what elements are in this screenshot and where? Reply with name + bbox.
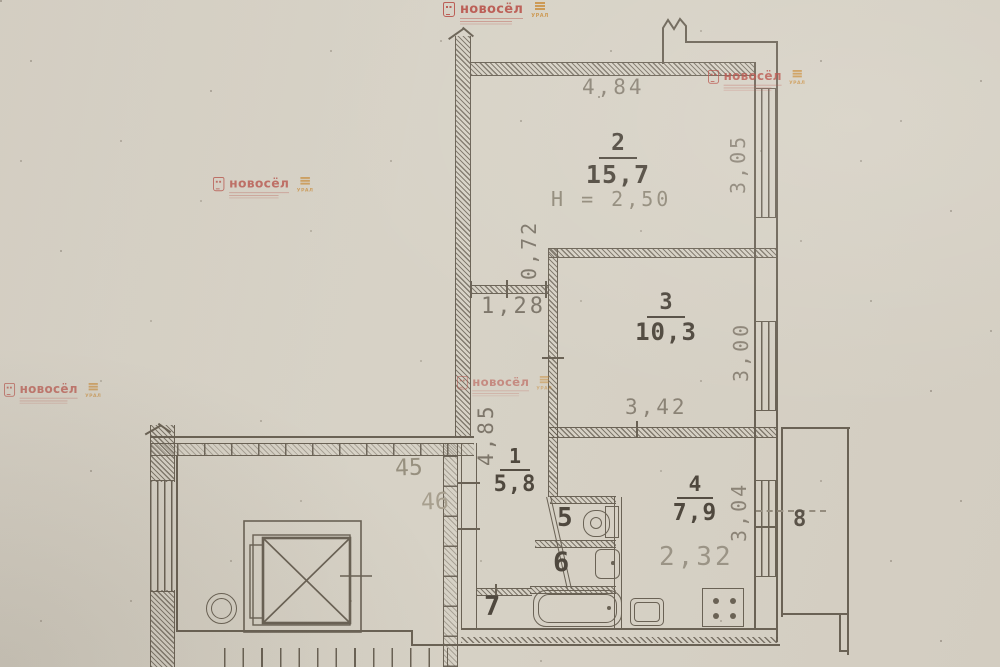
watermark: новосёл УРАЛ xyxy=(213,177,313,196)
door-tick xyxy=(542,357,564,359)
room-2-area: 15,7 xyxy=(578,161,658,188)
room-1-number: 1 xyxy=(500,446,530,471)
room-3-number: 3 xyxy=(647,291,684,318)
toilet-icon xyxy=(590,517,602,529)
room-4-label: 4 7,9 xyxy=(658,473,732,526)
unit-number-46: 46 xyxy=(421,489,450,516)
room-2-label: 2 15,7 xyxy=(578,131,658,188)
novosel-logo-icon xyxy=(4,383,15,397)
room-4-area: 7,9 xyxy=(658,501,732,526)
dim-room2-right: 3,05 xyxy=(726,134,750,194)
watermark-region: УРАЛ xyxy=(85,393,101,399)
balcony-outline xyxy=(847,615,849,655)
watermark-brand: новосёл xyxy=(229,177,289,193)
wall-segment xyxy=(461,637,778,643)
stove-burner-icon xyxy=(730,613,736,619)
door-tick xyxy=(458,528,480,530)
room-2-height-note: Н = 2,50 xyxy=(551,187,671,211)
garbage-chute-icon xyxy=(211,598,232,619)
door-tick xyxy=(470,281,472,298)
washbasin-icon xyxy=(595,549,620,579)
floor-plan-scan: 2 15,7 Н = 2,50 3 10,3 1 5,8 4 7,9 5 6 7… xyxy=(0,0,1000,667)
room-3-area: 10,3 xyxy=(626,320,706,346)
room-6-number: 6 xyxy=(553,547,569,578)
dim-corridor-length: 4,85 xyxy=(474,403,498,466)
room-3-label: 3 10,3 xyxy=(626,291,706,346)
dim-top-width: 4,84 xyxy=(582,75,645,99)
wall-segment xyxy=(548,248,778,258)
watermark-tagline xyxy=(724,87,772,88)
window-glyph xyxy=(150,480,175,592)
kitchen-sink-icon xyxy=(634,602,660,622)
room-5-number: 5 xyxy=(557,503,573,533)
unit-number-45: 45 xyxy=(395,455,424,482)
stove-burner-icon xyxy=(713,613,719,619)
watermark-region: УРАЛ xyxy=(789,80,805,86)
balcony-outline xyxy=(781,427,850,429)
balcony-outline xyxy=(839,650,849,652)
stairs-icon xyxy=(224,648,448,667)
stove-icon xyxy=(702,588,744,627)
watermark-bars-icon xyxy=(300,177,310,179)
room-4-number: 4 xyxy=(677,473,714,499)
paper-speckles xyxy=(0,0,2,2)
wall-segment xyxy=(461,628,778,630)
wall-segment xyxy=(150,443,474,456)
wall-segment xyxy=(150,436,474,438)
level-dashed-line xyxy=(756,510,826,512)
watermark-bars-icon xyxy=(540,376,549,378)
dim-kitchen-right: 3,04 xyxy=(727,482,751,542)
watermark-region: УРАЛ xyxy=(536,386,552,391)
wall-segment xyxy=(176,455,178,630)
dim-corridor-door: 0,72 xyxy=(517,220,541,280)
room-2-number: 2 xyxy=(599,131,637,159)
watermark-brand: новосёл xyxy=(20,383,78,399)
window-divider xyxy=(754,526,778,528)
wall-segment xyxy=(471,285,548,294)
door-tick xyxy=(458,482,480,484)
room-1-area: 5,8 xyxy=(483,473,547,497)
novosel-logo-icon xyxy=(708,70,719,84)
watermark-brand: новосёл xyxy=(724,70,782,86)
wall-segment xyxy=(548,248,558,438)
watermark-tagline xyxy=(460,21,512,22)
vent-stack-outline xyxy=(655,12,785,67)
watermark-region: УРАЛ xyxy=(531,13,549,19)
wall-segment xyxy=(443,443,458,667)
wall-segment xyxy=(176,630,412,632)
wall-segment xyxy=(150,425,175,482)
bathtub-icon xyxy=(607,606,611,610)
stove-burner-icon xyxy=(730,598,736,604)
dim-room3-bottom: 3,42 xyxy=(625,395,688,419)
watermark-bars-icon xyxy=(793,70,802,72)
dim-kitchen-width: 2,32 xyxy=(659,542,734,572)
elevator-icon xyxy=(243,520,373,634)
window-glyph xyxy=(754,321,778,411)
wall-tick xyxy=(636,421,638,438)
watermark-brand: новосёл xyxy=(460,2,523,19)
window-glyph xyxy=(754,480,778,577)
watermark-tagline xyxy=(472,393,519,394)
window-glyph xyxy=(754,88,778,218)
novosel-logo-icon xyxy=(213,177,224,191)
wall-segment xyxy=(150,590,175,667)
room-7-number: 7 xyxy=(484,591,500,622)
watermark-brand: новосёл xyxy=(472,376,529,391)
wall-segment xyxy=(548,438,558,497)
watermark: новосёл УРАЛ xyxy=(443,2,549,22)
balcony-outline xyxy=(847,427,849,618)
stove-burner-icon xyxy=(713,598,719,604)
wall-segment xyxy=(535,540,616,548)
watermark: новосёл УРАЛ xyxy=(4,383,101,401)
wall-segment xyxy=(411,644,780,646)
balcony-outline xyxy=(839,615,841,652)
watermark-tagline xyxy=(20,400,68,401)
watermark-bars-icon xyxy=(535,2,545,4)
washbasin-icon xyxy=(611,561,615,565)
wall-segment xyxy=(548,427,778,438)
novosel-logo-icon xyxy=(457,376,468,390)
balcony-outline xyxy=(781,427,783,617)
watermark-region: УРАЛ xyxy=(297,187,314,193)
dim-corridor-width: 1,28 xyxy=(481,294,546,319)
novosel-logo-icon xyxy=(443,2,455,17)
wall-segment xyxy=(461,443,477,630)
watermark-tagline xyxy=(229,195,278,196)
bathtub-icon xyxy=(538,594,617,623)
room-8-number: 8 xyxy=(793,507,806,532)
dim-room3-right: 3,00 xyxy=(729,322,753,382)
watermark: новосёл УРАЛ xyxy=(457,376,552,394)
watermark: новосёл УРАЛ xyxy=(708,70,805,88)
watermark-bars-icon xyxy=(89,383,98,385)
